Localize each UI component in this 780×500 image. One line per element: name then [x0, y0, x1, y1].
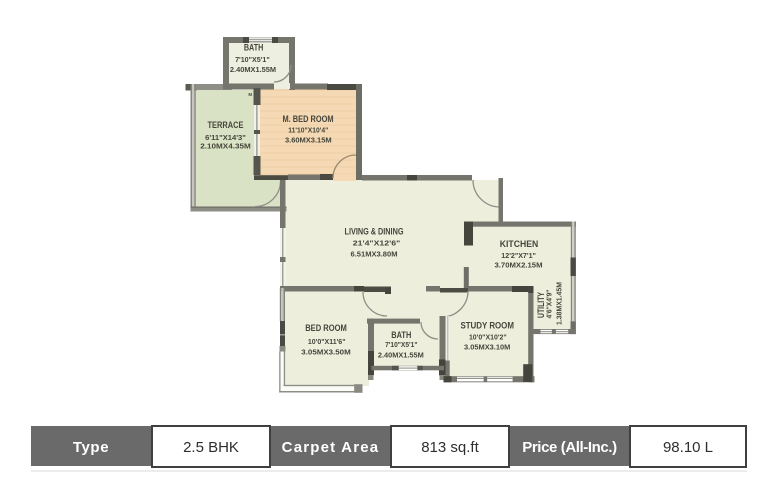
svg-text:3.05MX3.10M: 3.05MX3.10M	[464, 342, 510, 351]
svg-text:STUDY ROOM: STUDY ROOM	[460, 320, 514, 330]
svg-text:10'0"X11'6": 10'0"X11'6"	[308, 337, 346, 346]
svg-text:11'10"X10'4": 11'10"X10'4"	[288, 126, 328, 135]
svg-text:6.51MX3.80M: 6.51MX3.80M	[351, 250, 398, 259]
svg-text:21'4"X12'6": 21'4"X12'6"	[353, 239, 401, 248]
svg-text:7'10"X5'1": 7'10"X5'1"	[235, 55, 270, 64]
svg-text:1.38MX1.45M: 1.38MX1.45M	[555, 282, 564, 325]
svg-text:10'0"X10'2": 10'0"X10'2"	[469, 333, 507, 342]
svg-text:2.10MX4.35M: 2.10MX4.35M	[200, 141, 250, 150]
svg-text:3.05MX3.50M: 3.05MX3.50M	[301, 347, 350, 356]
svg-text:2.40MX1.55M: 2.40MX1.55M	[378, 351, 424, 360]
svg-text:3.60MX3.15M: 3.60MX3.15M	[285, 136, 332, 145]
svg-text:3.70MX2.15M: 3.70MX2.15M	[495, 261, 543, 270]
svg-text:4'6"X4'9": 4'6"X4'9"	[545, 289, 554, 318]
svg-text:BATH: BATH	[391, 330, 411, 340]
svg-text:TERRACE: TERRACE	[208, 120, 244, 130]
svg-text:BATH: BATH	[244, 43, 264, 53]
svg-text:7'10"X5'1": 7'10"X5'1"	[385, 340, 418, 349]
svg-text:M: M	[248, 92, 252, 97]
svg-text:12'2"X7'1": 12'2"X7'1"	[501, 251, 536, 260]
svg-text:BED ROOM: BED ROOM	[305, 323, 347, 333]
svg-text:KITCHEN: KITCHEN	[500, 239, 539, 249]
svg-text:LIVING & DINING: LIVING & DINING	[345, 227, 404, 237]
svg-text:M. BED ROOM: M. BED ROOM	[283, 114, 334, 124]
svg-text:2.40MX1.55M: 2.40MX1.55M	[230, 65, 276, 74]
